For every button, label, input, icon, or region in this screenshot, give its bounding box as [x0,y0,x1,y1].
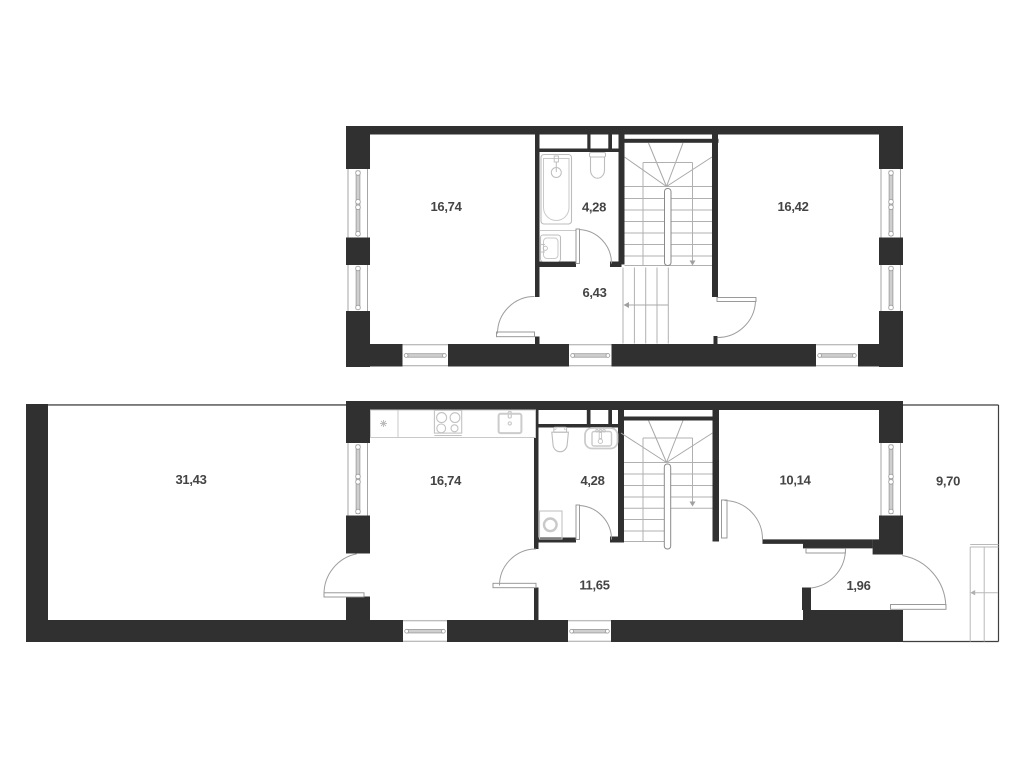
svg-text:6,43: 6,43 [582,285,606,300]
svg-text:16,74: 16,74 [430,199,462,214]
svg-text:16,74: 16,74 [430,473,462,488]
svg-text:9,70: 9,70 [936,474,960,489]
svg-text:11,65: 11,65 [579,578,609,593]
svg-text:4,28: 4,28 [582,200,606,215]
svg-text:4,28: 4,28 [580,473,604,488]
svg-text:10,14: 10,14 [779,473,811,488]
svg-text:16,42: 16,42 [777,199,808,214]
svg-text:31,43: 31,43 [175,472,206,487]
svg-text:1,96: 1,96 [846,578,870,593]
